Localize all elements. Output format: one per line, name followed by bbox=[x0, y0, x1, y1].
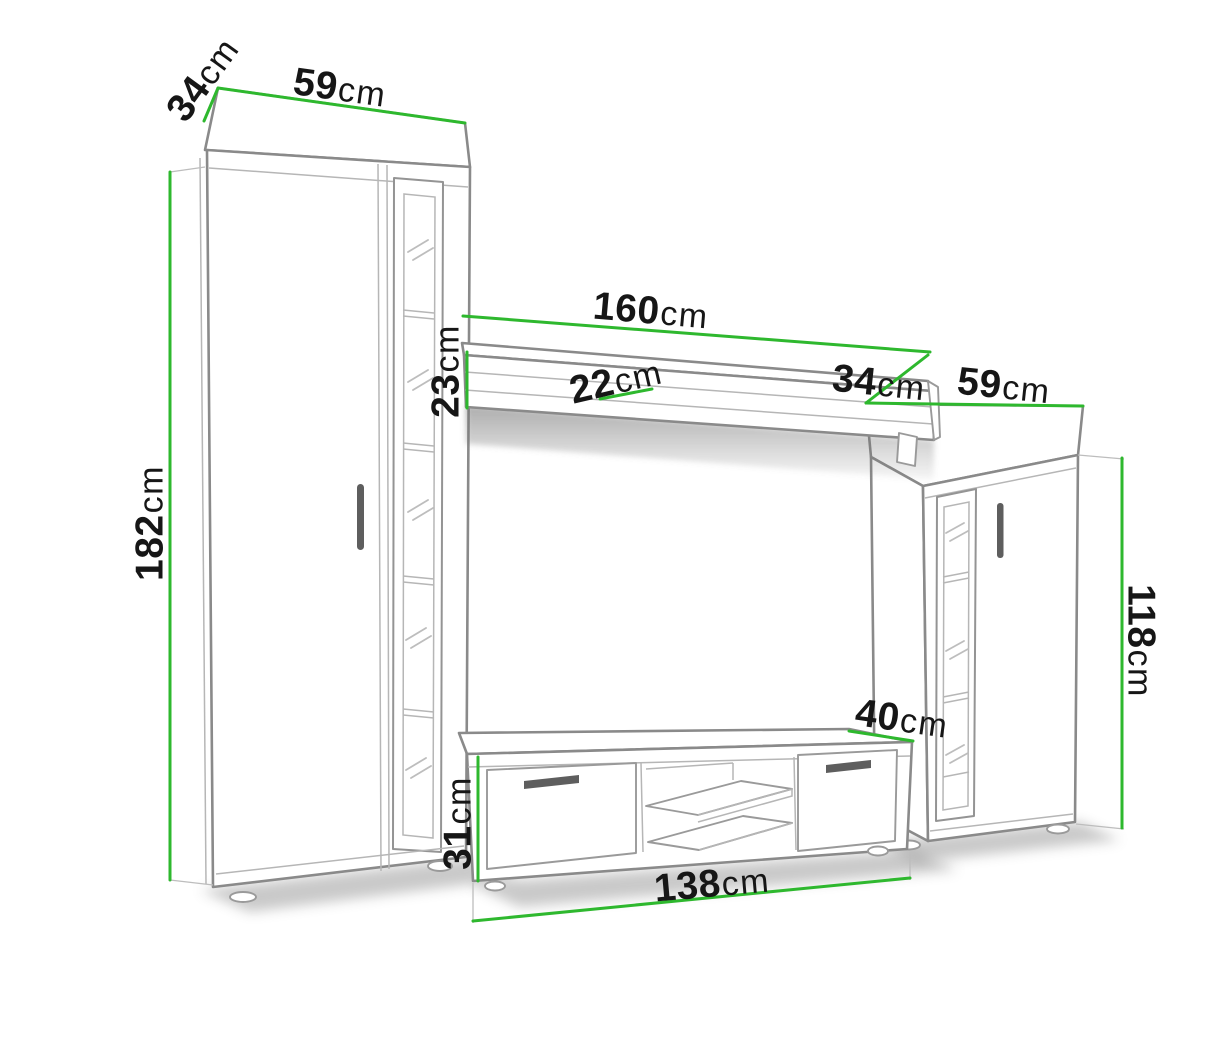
furniture-dimension-diagram: 34cm 59cm 182cm 160cm 23cm 22cm 34cm 59c… bbox=[0, 0, 1212, 1057]
dimension-value: 118 bbox=[1122, 584, 1161, 648]
dimension-unit: cm bbox=[336, 72, 389, 112]
dimension-unit: cm bbox=[443, 776, 477, 824]
left-cabinet-door-handle bbox=[357, 484, 364, 550]
cabinet-foot bbox=[230, 892, 256, 902]
dim-label-tv-stand-height: 31cm bbox=[439, 776, 478, 870]
dimension-value: 22 bbox=[566, 363, 618, 411]
shelf-support-bracket bbox=[897, 433, 917, 466]
dimension-value: 59 bbox=[291, 62, 340, 107]
dimension-unit: cm bbox=[659, 296, 710, 334]
dimension-value: 182 bbox=[131, 514, 170, 581]
dimension-unit: cm bbox=[135, 465, 169, 513]
dim-label-right-cabinet-width: 59cm bbox=[955, 362, 1052, 411]
dimension-unit: cm bbox=[1123, 650, 1157, 698]
dimension-value: 160 bbox=[592, 287, 662, 332]
dimension-unit: cm bbox=[720, 864, 771, 902]
cabinet-foot bbox=[1047, 825, 1069, 834]
dimension-value: 40 bbox=[853, 693, 902, 738]
dimension-value: 23 bbox=[427, 373, 466, 417]
cabinet-foot bbox=[868, 847, 888, 856]
dim-label-shelf-height: 23cm bbox=[427, 324, 466, 418]
dim-label-left-cabinet-height: 182cm bbox=[131, 465, 170, 581]
furniture-drawing-canvas bbox=[0, 0, 1212, 1057]
dimension-value: 34 bbox=[830, 359, 878, 402]
dim-label-right-cabinet-height: 118cm bbox=[1122, 584, 1161, 698]
dimension-value: 31 bbox=[439, 825, 478, 869]
cabinet-foot bbox=[485, 882, 505, 891]
dimension-unit: cm bbox=[898, 703, 951, 743]
dimension-unit: cm bbox=[876, 367, 928, 406]
dimension-value: 59 bbox=[955, 362, 1003, 405]
left-tall-cabinet bbox=[200, 88, 470, 902]
dim-label-right-cabinet-depth: 34cm bbox=[830, 359, 927, 408]
dimension-unit: cm bbox=[1001, 370, 1053, 409]
dimension-value: 138 bbox=[653, 864, 723, 909]
dimension-unit: cm bbox=[431, 324, 465, 372]
right-cabinet-door-handle bbox=[997, 503, 1004, 558]
left-cabinet-glass-door bbox=[393, 178, 443, 852]
